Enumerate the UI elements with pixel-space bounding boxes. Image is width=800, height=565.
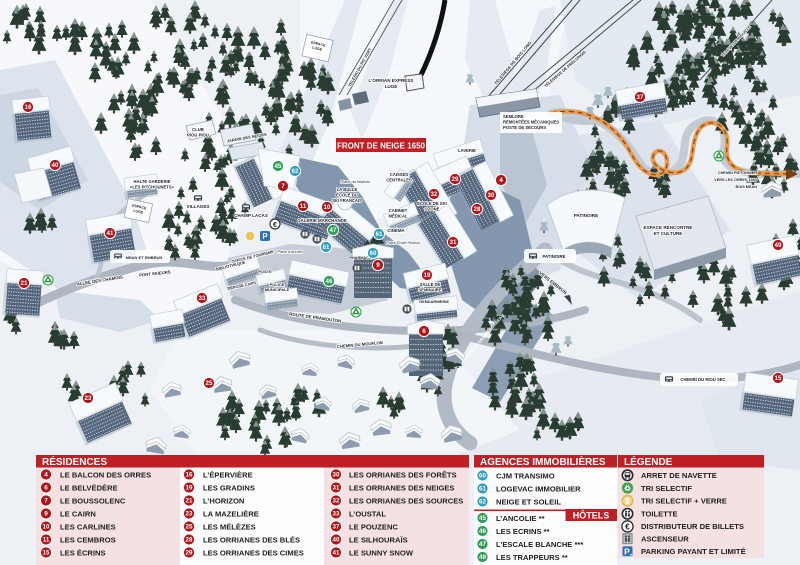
svg-text:23: 23 (186, 511, 193, 518)
svg-text:Place du festival: Place du festival (340, 179, 369, 184)
svg-text:CAISSES: CAISSES (390, 172, 409, 177)
svg-text:41: 41 (333, 550, 340, 557)
svg-text:LUGE: LUGE (385, 84, 398, 89)
svg-text:28: 28 (186, 537, 193, 544)
svg-text:PIOU PIOU: PIOU PIOU (187, 132, 209, 137)
svg-text:ÉCOLE DE SKI: ÉCOLE DE SKI (417, 201, 447, 206)
svg-text:41: 41 (107, 230, 114, 237)
svg-text:NEIGE ET SOLEIL: NEIGE ET SOLEIL (496, 497, 561, 506)
svg-text:46: 46 (479, 528, 486, 535)
svg-text:16: 16 (186, 472, 193, 479)
svg-text:LES ORRIANES DES BLÉS: LES ORRIANES DES BLÉS (203, 535, 300, 544)
svg-text:61: 61 (323, 244, 330, 251)
svg-text:7: 7 (281, 183, 285, 190)
svg-text:L’OUSTAL: L’OUSTAL (349, 509, 386, 518)
svg-text:LOGEVAC IMMOBILIER: LOGEVAC IMMOBILIER (496, 484, 581, 493)
svg-text:28: 28 (474, 206, 481, 213)
svg-text:37: 37 (333, 524, 340, 531)
svg-text:LES ÉCRINS: LES ÉCRINS (60, 548, 106, 557)
svg-text:10: 10 (43, 524, 50, 531)
svg-text:62: 62 (292, 168, 299, 175)
svg-text:ESPACE RENCONTRE: ESPACE RENCONTRE (644, 225, 693, 230)
svg-text:CABINET: CABINET (389, 208, 408, 213)
svg-text:9: 9 (44, 511, 48, 518)
svg-text:CHEMIN PIÉTONNIER: CHEMIN PIÉTONNIER (718, 170, 757, 175)
svg-text:RÉSIDENCES: RÉSIDENCES (42, 455, 107, 468)
svg-text:VILLAGES: VILLAGES (187, 204, 210, 209)
svg-text:LES TRAPPEURS **: LES TRAPPEURS ** (496, 553, 568, 562)
svg-text:TOILETTE: TOILETTE (641, 510, 678, 519)
svg-text:49: 49 (775, 242, 782, 249)
svg-text:ET CULTURE: ET CULTURE (654, 231, 683, 236)
svg-text:LES MÉLÈZES: LES MÉLÈZES (203, 522, 256, 531)
svg-text:46: 46 (326, 278, 333, 285)
svg-text:HALTE GARDERIE: HALTE GARDERIE (134, 179, 171, 184)
svg-text:16: 16 (25, 104, 32, 111)
svg-text:«LES PITCHOUNETS»: «LES PITCHOUNETS» (130, 184, 175, 189)
svg-text:6: 6 (422, 328, 426, 335)
svg-text:P: P (262, 232, 268, 241)
svg-text:LE POUZENC: LE POUZENC (349, 522, 398, 531)
svg-text:21: 21 (186, 498, 193, 505)
svg-text:€: € (625, 522, 630, 531)
svg-text:LE SILHOURAÏS: LE SILHOURAÏS (349, 535, 408, 544)
svg-text:45: 45 (479, 515, 486, 522)
svg-text:LES ORRIANES DES NEIGES: LES ORRIANES DES NEIGES (349, 483, 455, 492)
svg-text:LE CAIRN: LE CAIRN (60, 509, 96, 518)
svg-text:23: 23 (85, 395, 92, 402)
svg-text:11: 11 (43, 537, 50, 544)
svg-text:SKI FRANÇAIS: SKI FRANÇAIS (332, 198, 362, 203)
svg-text:CJM TRANSIMO: CJM TRANSIMO (496, 471, 555, 480)
svg-text:25: 25 (206, 380, 213, 387)
svg-text:31: 31 (450, 239, 457, 246)
svg-text:LA BULLE: LA BULLE (337, 187, 358, 192)
svg-text:L’ANCOLIE **: L’ANCOLIE ** (496, 514, 545, 523)
svg-text:OZONE: OZONE (425, 206, 440, 211)
svg-text:ÉCOLE DU: ÉCOLE DU (336, 192, 358, 197)
svg-text:ARRET DE NAVETTE: ARRET DE NAVETTE (641, 471, 717, 480)
svg-text:REMONTÉES MÉCANIQUES: REMONTÉES MÉCANIQUES (503, 119, 559, 124)
svg-text:LE SUNNY SNOW: LE SUNNY SNOW (349, 548, 414, 557)
svg-text:LES GRADINS: LES GRADINS (203, 483, 255, 492)
svg-text:SEMLORE: SEMLORE (503, 114, 524, 119)
svg-text:L’ESCALE BLANCHE ***: L’ESCALE BLANCHE *** (496, 540, 583, 549)
svg-text:25: 25 (186, 524, 193, 531)
svg-text:60: 60 (370, 250, 377, 257)
svg-text:CHEMIN DU RIOU SEC: CHEMIN DU RIOU SEC (680, 377, 725, 382)
svg-text:MÉDICAL: MÉDICAL (388, 213, 408, 218)
svg-text:61: 61 (479, 486, 486, 493)
svg-text:ASCENSEUR: ASCENSEUR (641, 535, 689, 544)
svg-text:HÔTELS: HÔTELS (573, 510, 610, 521)
svg-text:CENTRALES: CENTRALES (386, 177, 412, 182)
svg-text:11: 11 (300, 203, 307, 210)
svg-text:29: 29 (186, 550, 193, 557)
svg-text:45: 45 (275, 163, 282, 170)
svg-text:7: 7 (44, 498, 48, 505)
svg-text:L’ÉPERVIÈRE: L’ÉPERVIÈRE (203, 470, 253, 479)
svg-text:LE BOUSSOLENC: LE BOUSSOLENC (60, 496, 126, 505)
svg-text:MEAN ET EMBRUN: MEAN ET EMBRUN (126, 255, 163, 260)
svg-text:LES CARLINES: LES CARLINES (60, 522, 116, 531)
svg-text:29: 29 (452, 176, 459, 183)
svg-text:47: 47 (479, 541, 486, 548)
svg-text:30: 30 (333, 472, 340, 479)
svg-text:CHAMP LACAS: CHAMP LACAS (234, 213, 268, 218)
svg-text:LE BELVÉDÈRE: LE BELVÉDÈRE (60, 483, 118, 492)
svg-text:MUNICIPALE: MUNICIPALE (265, 287, 290, 292)
svg-text:FRONT DE NEIGE 1650: FRONT DE NEIGE 1650 (337, 142, 426, 151)
svg-text:LE BALCON DES ORRES: LE BALCON DES ORRES (60, 470, 151, 479)
svg-text:60: 60 (479, 473, 486, 480)
svg-text:15: 15 (775, 375, 782, 382)
svg-text:POSTE: POSTE (258, 269, 272, 274)
svg-text:6: 6 (44, 485, 48, 492)
svg-text:4: 4 (499, 177, 503, 184)
svg-text:L’HORIZON: L’HORIZON (203, 496, 244, 505)
svg-text:TRI SELECTIF: TRI SELECTIF (641, 484, 692, 493)
svg-text:15: 15 (43, 550, 50, 557)
svg-text:DISTRIBUTEUR DE BILLETS: DISTRIBUTEUR DE BILLETS (641, 522, 744, 531)
svg-text:PARKING PAYANT ET LIMITÉ: PARKING PAYANT ET LIMITÉ (641, 547, 746, 556)
svg-text:LES ORRIANES DES FORÊTS: LES ORRIANES DES FORÊTS (349, 470, 457, 479)
svg-text:LA MAZELIÈRE: LA MAZELIÈRE (203, 509, 259, 518)
svg-text:PATINOIRE: PATINOIRE (574, 213, 598, 218)
svg-text:LES ORRIANES DES SOURCES: LES ORRIANES DES SOURCES (349, 496, 463, 505)
svg-text:PATINOIRE: PATINOIRE (542, 254, 565, 259)
svg-text:VERS LES ORRES 1800: VERS LES ORRES 1800 (714, 178, 757, 182)
svg-text:19: 19 (186, 485, 193, 492)
svg-text:30: 30 (488, 192, 495, 199)
svg-text:33: 33 (333, 511, 340, 518)
svg-text:GENDARMERIE: GENDARMERIE (419, 299, 449, 304)
svg-text:SALLE DE: SALLE DE (420, 282, 441, 287)
svg-text:LES ECRINS **: LES ECRINS ** (496, 527, 550, 536)
svg-text:Place Émile Hodoul: Place Émile Hodoul (386, 240, 419, 245)
svg-text:Place d'accueil: Place d'accueil (277, 250, 302, 254)
svg-text:31: 31 (333, 485, 340, 492)
svg-text:CLUB: CLUB (192, 127, 204, 132)
svg-text:LES ORRIANES DES CIMES: LES ORRIANES DES CIMES (203, 548, 304, 557)
svg-text:40: 40 (333, 537, 340, 544)
svg-text:47: 47 (330, 227, 337, 234)
svg-text:GALERIE MARCHANDE: GALERIE MARCHANDE (297, 218, 347, 223)
svg-text:32: 32 (333, 498, 340, 505)
svg-text:CINÉMA: CINÉMA (387, 228, 405, 233)
svg-text:49: 49 (479, 554, 486, 561)
svg-text:LES CEMBROS: LES CEMBROS (60, 535, 116, 544)
svg-text:L'ORRIAN EXPRESS: L'ORRIAN EXPRESS (369, 78, 414, 83)
svg-text:19: 19 (424, 272, 431, 279)
svg-text:4: 4 (44, 472, 48, 479)
svg-text:AGENCES IMMOBILIÈRES: AGENCES IMMOBILIÈRES (480, 455, 606, 468)
svg-text:32: 32 (431, 191, 438, 198)
svg-text:9: 9 (376, 262, 380, 269)
svg-text:61: 61 (376, 231, 383, 238)
svg-text:40: 40 (52, 162, 59, 169)
svg-text:LAVERIE: LAVERIE (458, 148, 476, 153)
svg-text:LÉGENDE: LÉGENDE (624, 455, 673, 468)
svg-text:TRI SELECTIF + VERRE: TRI SELECTIF + VERRE (641, 497, 727, 506)
svg-text:€: € (273, 222, 277, 229)
svg-text:10: 10 (324, 204, 331, 211)
svg-text:21: 21 (21, 280, 28, 287)
svg-text:BOIS MÉAN: BOIS MÉAN (735, 184, 757, 189)
svg-text:P: P (624, 547, 630, 557)
svg-text:37: 37 (637, 94, 644, 101)
svg-text:33: 33 (199, 295, 206, 302)
svg-text:POSTE DE SECOURS: POSTE DE SECOURS (503, 125, 546, 130)
svg-text:62: 62 (479, 499, 486, 506)
svg-text:SÉMINAIRE: SÉMINAIRE (418, 287, 441, 292)
